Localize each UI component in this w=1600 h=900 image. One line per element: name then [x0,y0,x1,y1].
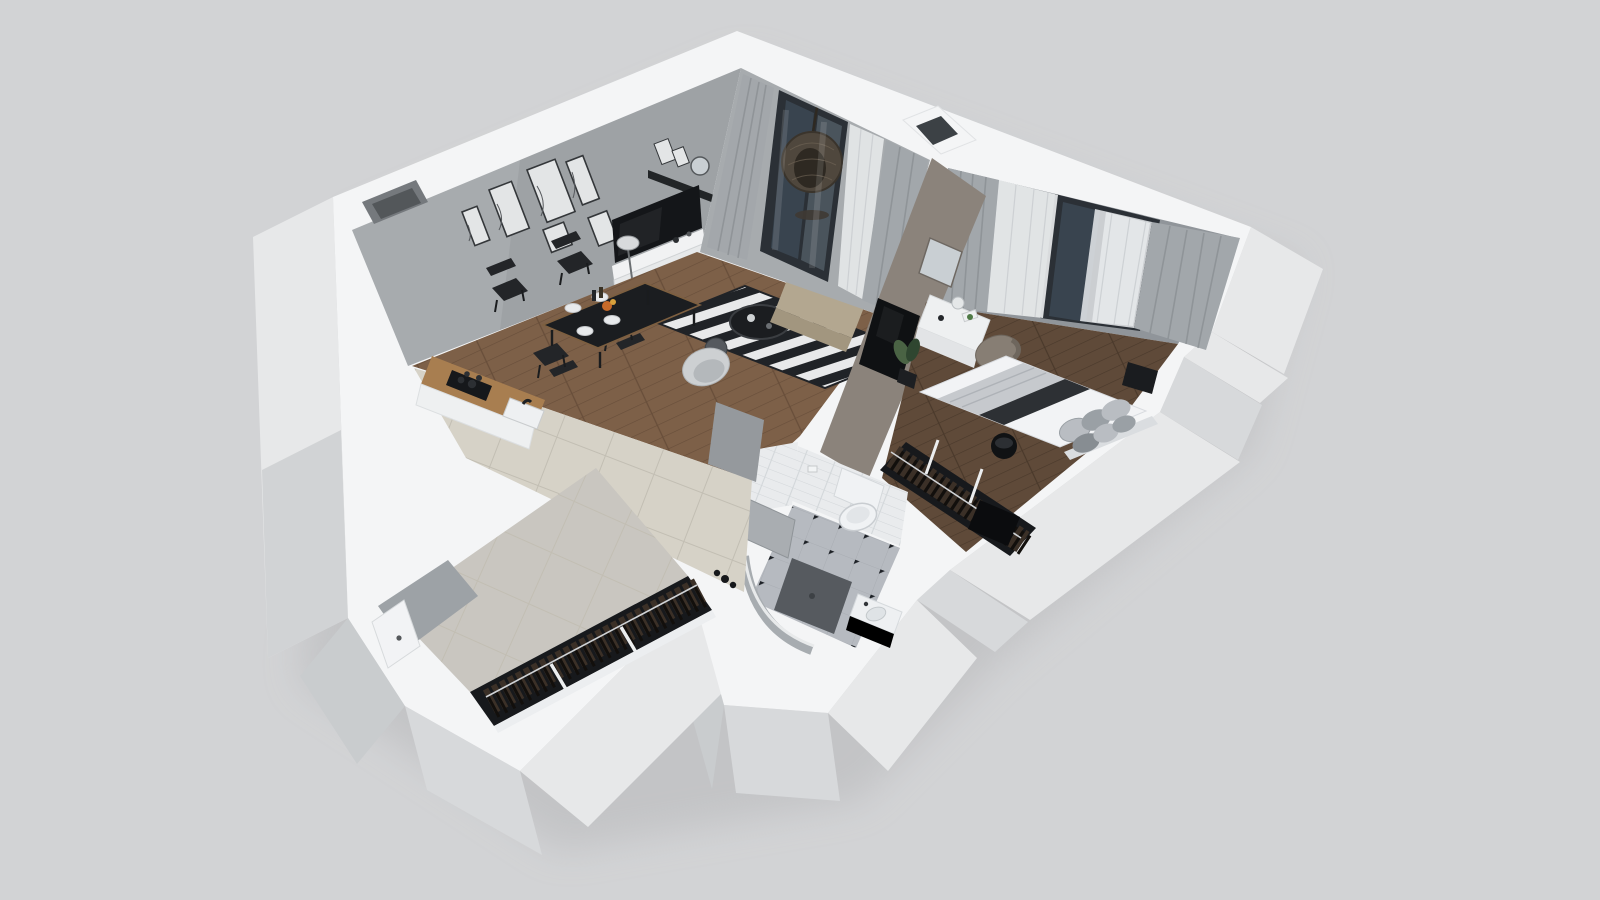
shelf-round-mirror [691,157,709,175]
desk-ball-lamp [952,297,964,309]
coffee-table-decor [766,323,772,329]
entrance-door-handle [396,635,401,640]
vanity-faucet [864,602,868,606]
desk-candle [938,315,944,321]
stand-decor-vase [673,237,679,243]
desk-tray-plant [967,314,973,320]
egg-chair-base [795,210,829,220]
bed-foot-pot-top [995,438,1013,449]
floorplan-render [0,0,1600,900]
shower-drain [809,593,815,599]
outer-face-bath-south [724,705,840,801]
floorplan-svg [0,0,1600,900]
outer-face-west-lower [262,430,348,658]
toilet-paper-holder [808,466,817,472]
coffee-table-bowl [747,314,755,322]
stand-decor-object [687,232,692,237]
